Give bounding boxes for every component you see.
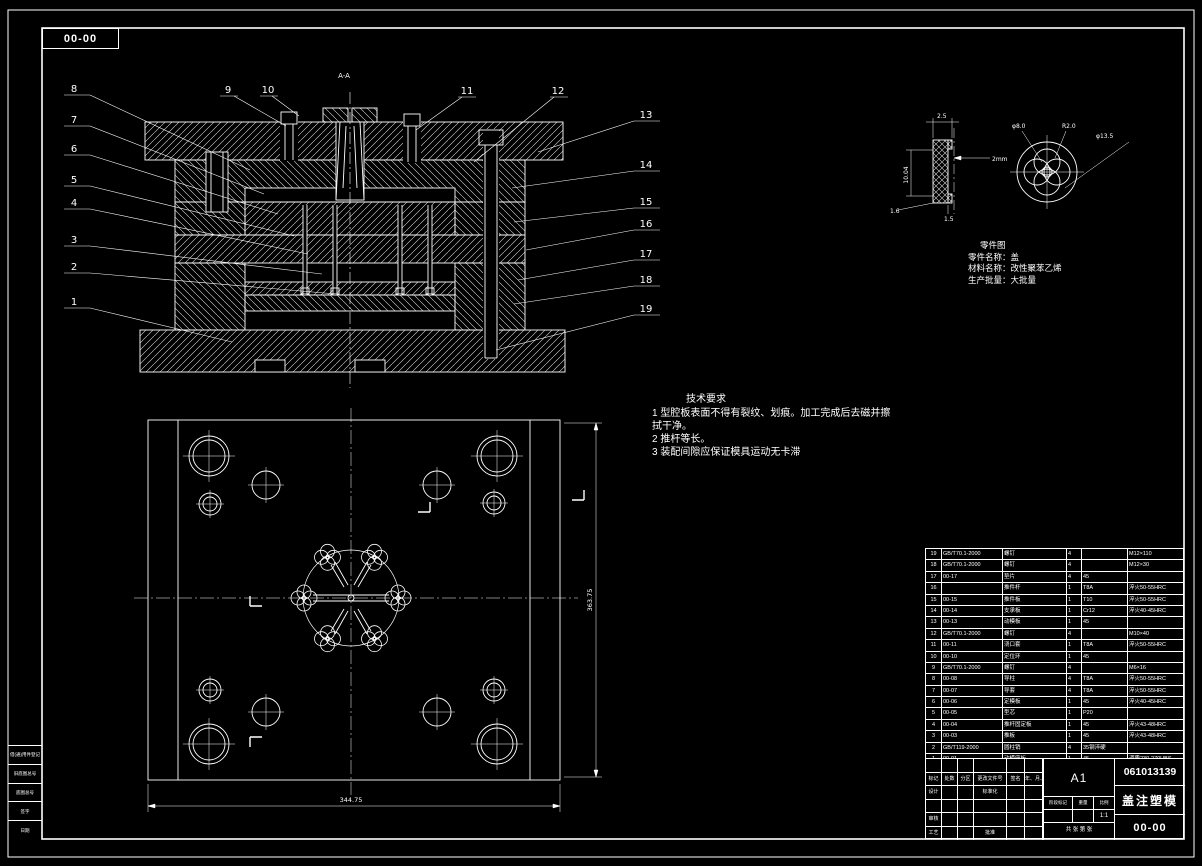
- tech-req-line: 3 装配间隙应保证模具运动无卡滞: [652, 446, 962, 459]
- bom-cell: 浇口套: [1002, 640, 1066, 650]
- stage-label: 阶段标记: [1044, 797, 1073, 809]
- bom-cell: 45: [1081, 652, 1127, 662]
- title-block-cell: [1025, 786, 1043, 799]
- bom-cell: P20: [1081, 708, 1127, 718]
- part-info-block: 零件图 零件名称：盖 材料名称：改性聚苯乙烯 生产批量：大批量: [968, 240, 1168, 286]
- cad-drawing-page: { "frame": { "sheet_code": "00-00", "edg…: [0, 0, 1202, 866]
- dim-radius: R2.0: [1062, 123, 1076, 130]
- bom-cell: 8: [926, 674, 941, 684]
- bom-row: 9GB/T70.1-2000螺钉4M6×16: [926, 662, 1183, 673]
- title-block-cell: 工艺: [926, 827, 942, 841]
- bom-cell: T10: [1081, 595, 1127, 605]
- bom-cell: 4: [926, 720, 941, 730]
- callout-18: 18: [640, 275, 653, 286]
- bom-cell: [941, 583, 1002, 593]
- bom-cell: 19: [926, 549, 941, 559]
- section-label: A-A: [338, 72, 350, 80]
- bom-cell: 6: [926, 697, 941, 707]
- bom-cell: 4: [1066, 572, 1081, 582]
- bom-cell: GB/T70.1-2000: [941, 663, 1002, 673]
- title-block-cell: 批准: [974, 827, 1007, 841]
- bom-cell: 15: [926, 595, 941, 605]
- bom-cell: 螺钉: [1002, 549, 1066, 559]
- bom-cell: 45: [1081, 572, 1127, 582]
- bom-cell: 1: [1066, 652, 1081, 662]
- bom-cell: 推件板: [1002, 595, 1066, 605]
- callout-13: 13: [640, 110, 653, 121]
- callout-9: 9: [225, 85, 231, 96]
- stage-value: [1044, 810, 1073, 822]
- callout-4: 4: [71, 198, 77, 209]
- title-block-cell: [942, 759, 958, 772]
- bom-cell: 1: [1066, 583, 1081, 593]
- title-block-cell: [1007, 786, 1025, 799]
- title-block-cell: [958, 827, 974, 841]
- bom-cell: 00-08: [941, 674, 1002, 684]
- bom-cell: 1: [1066, 595, 1081, 605]
- scale-label: 比例: [1094, 797, 1115, 809]
- bom-cell: 定位环: [1002, 652, 1066, 662]
- sheet-code-label: 00-00: [64, 33, 97, 45]
- bom-cell: 11: [926, 640, 941, 650]
- title-block-cell: [1025, 759, 1043, 772]
- drawing-number: 061013139: [1115, 759, 1185, 786]
- bom-cell: M6×16: [1127, 663, 1183, 673]
- bom-cell: 淬火50-55HRC: [1127, 583, 1183, 593]
- title-block-cell: 设计: [926, 786, 942, 799]
- title-block-cell: [958, 813, 974, 826]
- title-block-cell: [974, 800, 1007, 813]
- title-block-cell: [1007, 813, 1025, 826]
- title-block-cell: 标准化: [974, 786, 1007, 799]
- bom-row: 2GB/T119-2000圆柱销435钢淬硬: [926, 742, 1183, 753]
- bom-cell: 4: [1066, 686, 1081, 696]
- weight-value: [1073, 810, 1094, 822]
- bom-cell: 3: [926, 731, 941, 741]
- bom-cell: 45: [1081, 731, 1127, 741]
- bom-cell: 00-13: [941, 617, 1002, 627]
- bom-cell: [1127, 652, 1183, 662]
- dim-wall: 2mm: [992, 156, 1008, 163]
- title-block-cell: [958, 800, 974, 813]
- title-block-cell: 处数: [942, 773, 958, 786]
- scale-value: 1:1: [1094, 810, 1115, 822]
- bom-cell: 7: [926, 686, 941, 696]
- dim-dia-large: φ13.5: [1096, 133, 1114, 140]
- bom-row: 1300-13动模板145: [926, 616, 1183, 627]
- bom-row: 1400-14支承板1Cr12淬火40-45HRC: [926, 605, 1183, 616]
- part-name-line: 零件名称：盖: [968, 252, 1168, 264]
- bom-cell: 00-15: [941, 595, 1002, 605]
- bom-cell: 1: [1066, 640, 1081, 650]
- title-block-cell: [942, 813, 958, 826]
- callout-3: 3: [71, 235, 77, 246]
- title-block-cell: [958, 786, 974, 799]
- callout-5: 5: [71, 175, 77, 186]
- title-block-right: 061013139 盖注塑模 00-00: [1114, 759, 1185, 840]
- bom-row: 1500-15推件板1T10淬火50-55HRC: [926, 594, 1183, 605]
- callout-15: 15: [640, 197, 653, 208]
- bom-cell: 00-11: [941, 640, 1002, 650]
- title-block-cell: [958, 759, 974, 772]
- title-block-row: 审核: [926, 813, 1043, 827]
- bom-cell: 4: [1066, 674, 1081, 684]
- bom-cell: 00-07: [941, 686, 1002, 696]
- bom-cell: M12×110: [1127, 549, 1183, 559]
- gate-detail-view: [898, 118, 1129, 214]
- title-block-cell: [1025, 827, 1043, 841]
- bom-cell: 淬火43-48HRC: [1127, 731, 1183, 741]
- bom-table-body: 19GB/T70.1-2000螺钉4M12×11018GB/T70.1-2000…: [926, 549, 1183, 778]
- callout-11: 11: [461, 86, 474, 97]
- bom-row: 19GB/T70.1-2000螺钉4M12×110: [926, 549, 1183, 559]
- bom-row: 300-03推板145淬火43-48HRC: [926, 730, 1183, 741]
- drawing-title: 盖注塑模: [1115, 786, 1185, 815]
- paper-size-cell: A1: [1044, 759, 1114, 797]
- weight-label: 重量: [1073, 797, 1094, 809]
- bom-cell: T8A: [1081, 686, 1127, 696]
- title-block-cell: 分区: [958, 773, 974, 786]
- title-block-row: [926, 759, 1043, 773]
- title-block-cell: 审核: [926, 813, 942, 826]
- title-block-cell: [974, 813, 1007, 826]
- bom-row: 700-07导套4T8A淬火50-55HRC: [926, 685, 1183, 696]
- bom-cell: 12: [926, 629, 941, 639]
- stage-value-row: 1:1: [1044, 810, 1114, 823]
- title-block-cell: [926, 759, 942, 772]
- title-block-cell: [1007, 759, 1025, 772]
- bom-cell: 45: [1081, 697, 1127, 707]
- bom-cell: 淬火40-45HRC: [1127, 606, 1183, 616]
- edge-label: 日期: [8, 821, 42, 840]
- sheet-number: 00-00: [1115, 815, 1185, 840]
- callout-17: 17: [640, 249, 653, 260]
- title-block-cell: [1007, 800, 1025, 813]
- bom-cell: 18: [926, 560, 941, 570]
- bom-cell: 00-14: [941, 606, 1002, 616]
- bom-cell: GB/T119-2000: [941, 743, 1002, 753]
- gate-detail-dimensions: 2.5 10.04 1.6 1.5 2mm φ8.0 R2.0 φ13.5: [890, 113, 1114, 223]
- edge-label: 签字: [8, 802, 42, 821]
- dim-dia-small: φ8.0: [1012, 123, 1026, 130]
- title-block-cell: 年、月、日: [1025, 773, 1043, 786]
- bom-row: 500-05型芯1P20: [926, 707, 1183, 718]
- bom-cell: GB/T70.1-2000: [941, 560, 1002, 570]
- stage-header-row: 阶段标记 重量 比例: [1044, 797, 1114, 810]
- title-block-revision-grid: 标记处数分区更改文件号签名年、月、日设计标准化审核工艺批准: [926, 759, 1043, 840]
- title-block-cell: 标记: [926, 773, 942, 786]
- title-block-cell: [1007, 827, 1025, 841]
- bom-cell: 1: [1066, 731, 1081, 741]
- part-material-line: 材料名称：改性聚苯乙烯: [968, 263, 1168, 275]
- bom-cell: 00-04: [941, 720, 1002, 730]
- bom-cell: 4: [1066, 549, 1081, 559]
- bom-cell: [1081, 549, 1127, 559]
- bom-cell: 45: [1081, 720, 1127, 730]
- dim-b: 1.5: [944, 216, 954, 223]
- bom-cell: 动模板: [1002, 617, 1066, 627]
- bom-cell: 支承板: [1002, 606, 1066, 616]
- bom-cell: 16: [926, 583, 941, 593]
- bom-cell: 17: [926, 572, 941, 582]
- bom-cell: [1127, 572, 1183, 582]
- bom-cell: GB/T70.1-2000: [941, 629, 1002, 639]
- bom-cell: 导套: [1002, 686, 1066, 696]
- frame-edge-strip: 借(通)用件登记 旧底图总号 底图总号 签字 日期: [8, 745, 42, 839]
- title-block-row: [926, 800, 1043, 814]
- bom-cell: 1: [1066, 708, 1081, 718]
- bom-cell: T8A: [1081, 583, 1127, 593]
- bom-cell: GB/T70.1-2000: [941, 549, 1002, 559]
- title-block-middle: A1 阶段标记 重量 比例 1:1 共 张 第 张: [1043, 759, 1114, 840]
- tech-req-title: 技术要求: [686, 393, 962, 406]
- bom-row: 12GB/T70.1-2000螺钉4M10×40: [926, 628, 1183, 639]
- bom-cell: 00-10: [941, 652, 1002, 662]
- title-block-cell: [1025, 813, 1043, 826]
- bom-cell: 螺钉: [1002, 663, 1066, 673]
- bom-cell: Cr12: [1081, 606, 1127, 616]
- plan-right-dimension: 363.75: [586, 589, 594, 612]
- bom-cell: 导柱: [1002, 674, 1066, 684]
- bom-cell: 10: [926, 652, 941, 662]
- callout-6: 6: [71, 144, 77, 155]
- bom-cell: T8A: [1081, 640, 1127, 650]
- bom-cell: 1: [1066, 617, 1081, 627]
- bom-cell: 4: [1066, 743, 1081, 753]
- bom-cell: 4: [1066, 560, 1081, 570]
- bom-cell: 1: [1066, 697, 1081, 707]
- callout-19: 19: [640, 304, 653, 315]
- bom-row: 16推件杆1T8A淬火50-55HRC: [926, 582, 1183, 593]
- bom-cell: 圆柱销: [1002, 743, 1066, 753]
- bom-cell: [1127, 708, 1183, 718]
- title-block-cell: [942, 827, 958, 841]
- callout-8: 8: [71, 84, 77, 95]
- bom-cell: [1081, 663, 1127, 673]
- bom-cell: 淬火40-45HRC: [1127, 697, 1183, 707]
- bom-cell: [1081, 560, 1127, 570]
- plan-bottom-dimension: 344.75: [340, 796, 363, 804]
- title-block-cell: [926, 800, 942, 813]
- bom-row: 18GB/T70.1-2000螺钉4M12×30: [926, 559, 1183, 570]
- technical-requirements: 技术要求 1 型腔板表面不得有裂纹、划痕。加工完成后去磁并擦 拭干净。 2 推杆…: [652, 393, 962, 459]
- bom-cell: 定模板: [1002, 697, 1066, 707]
- bom-row: 1100-11浇口套1T8A淬火50-55HRC: [926, 639, 1183, 650]
- callout-16: 16: [640, 219, 653, 230]
- bom-cell: [1127, 617, 1183, 627]
- assembly-section-view: [140, 92, 565, 388]
- tech-req-line: 2 推杆等长。: [652, 433, 962, 446]
- bom-table: 19GB/T70.1-2000螺钉4M12×11018GB/T70.1-2000…: [925, 548, 1184, 779]
- bom-cell: 淬火43-48HRC: [1127, 720, 1183, 730]
- bom-row: 1000-10定位环145: [926, 651, 1183, 662]
- plan-view: [134, 408, 602, 812]
- callout-1: 1: [71, 297, 77, 308]
- bom-cell: [1127, 743, 1183, 753]
- title-block: 标记处数分区更改文件号签名年、月、日设计标准化审核工艺批准 A1 阶段标记 重量…: [925, 758, 1184, 839]
- sheet-code-box: 00-00: [42, 28, 119, 49]
- dim-height: 10.04: [903, 166, 910, 183]
- bom-cell: 推板: [1002, 731, 1066, 741]
- dim-thickness: 2.5: [937, 113, 947, 120]
- bom-cell: 13: [926, 617, 941, 627]
- sheet-count-note: 共 张 第 张: [1044, 823, 1114, 838]
- bom-cell: 螺钉: [1002, 560, 1066, 570]
- bom-cell: 4: [1066, 663, 1081, 673]
- bom-row: 400-04推杆固定板145淬火43-48HRC: [926, 719, 1183, 730]
- title-block-cell: 更改文件号: [974, 773, 1007, 786]
- bom-row: 800-08导柱4T8A淬火50-55HRC: [926, 673, 1183, 684]
- bom-cell: 00-06: [941, 697, 1002, 707]
- dim-a: 1.6: [890, 208, 900, 215]
- title-block-row: 标记处数分区更改文件号签名年、月、日: [926, 773, 1043, 787]
- title-block-cell: 签名: [1007, 773, 1025, 786]
- bom-cell: 14: [926, 606, 941, 616]
- part-info-title: 零件图: [980, 240, 1168, 252]
- bom-cell: 1: [1066, 720, 1081, 730]
- callout-10: 10: [262, 85, 275, 96]
- bom-cell: 45: [1081, 617, 1127, 627]
- bom-cell: 00-05: [941, 708, 1002, 718]
- callout-2: 2: [71, 262, 77, 273]
- tech-req-line: 拭干净。: [652, 420, 962, 433]
- bom-cell: 淬火50-55HRC: [1127, 686, 1183, 696]
- bom-cell: 螺钉: [1002, 629, 1066, 639]
- bom-cell: 2: [926, 743, 941, 753]
- bom-cell: M12×30: [1127, 560, 1183, 570]
- bom-cell: 淬火50-55HRC: [1127, 640, 1183, 650]
- bom-cell: 淬火50-55HRC: [1127, 595, 1183, 605]
- edge-label: 旧底图总号: [8, 765, 42, 784]
- bom-cell: 4: [1066, 629, 1081, 639]
- title-block-row: 工艺批准: [926, 827, 1043, 841]
- bom-cell: M10×40: [1127, 629, 1183, 639]
- tech-req-line: 1 型腔板表面不得有裂纹、划痕。加工完成后去磁并擦: [652, 407, 962, 420]
- bom-cell: 1: [1066, 606, 1081, 616]
- bom-cell: 型芯: [1002, 708, 1066, 718]
- bom-cell: 00-17: [941, 572, 1002, 582]
- part-batch-line: 生产批量：大批量: [968, 275, 1168, 287]
- bom-cell: 00-03: [941, 731, 1002, 741]
- bom-cell: 垫片: [1002, 572, 1066, 582]
- title-block-cell: [974, 759, 1007, 772]
- bom-cell: [1081, 629, 1127, 639]
- edge-label: 借(通)用件登记: [8, 746, 42, 765]
- bom-cell: 5: [926, 708, 941, 718]
- edge-label: 底图总号: [8, 784, 42, 803]
- title-block-row: 设计标准化: [926, 786, 1043, 800]
- bom-cell: 推件杆: [1002, 583, 1066, 593]
- bom-row: 1700-17垫片445: [926, 571, 1183, 582]
- bom-cell: 淬火50-55HRC: [1127, 674, 1183, 684]
- callout-12: 12: [552, 86, 565, 97]
- title-block-cell: [1025, 800, 1043, 813]
- callout-7: 7: [71, 115, 77, 126]
- bom-row: 600-06定模板145淬火40-45HRC: [926, 696, 1183, 707]
- bom-cell: 9: [926, 663, 941, 673]
- bom-cell: 35钢淬硬: [1081, 743, 1127, 753]
- title-block-cell: [942, 800, 958, 813]
- bom-cell: 推杆固定板: [1002, 720, 1066, 730]
- callout-14: 14: [640, 160, 653, 171]
- bom-cell: T8A: [1081, 674, 1127, 684]
- title-block-cell: [942, 786, 958, 799]
